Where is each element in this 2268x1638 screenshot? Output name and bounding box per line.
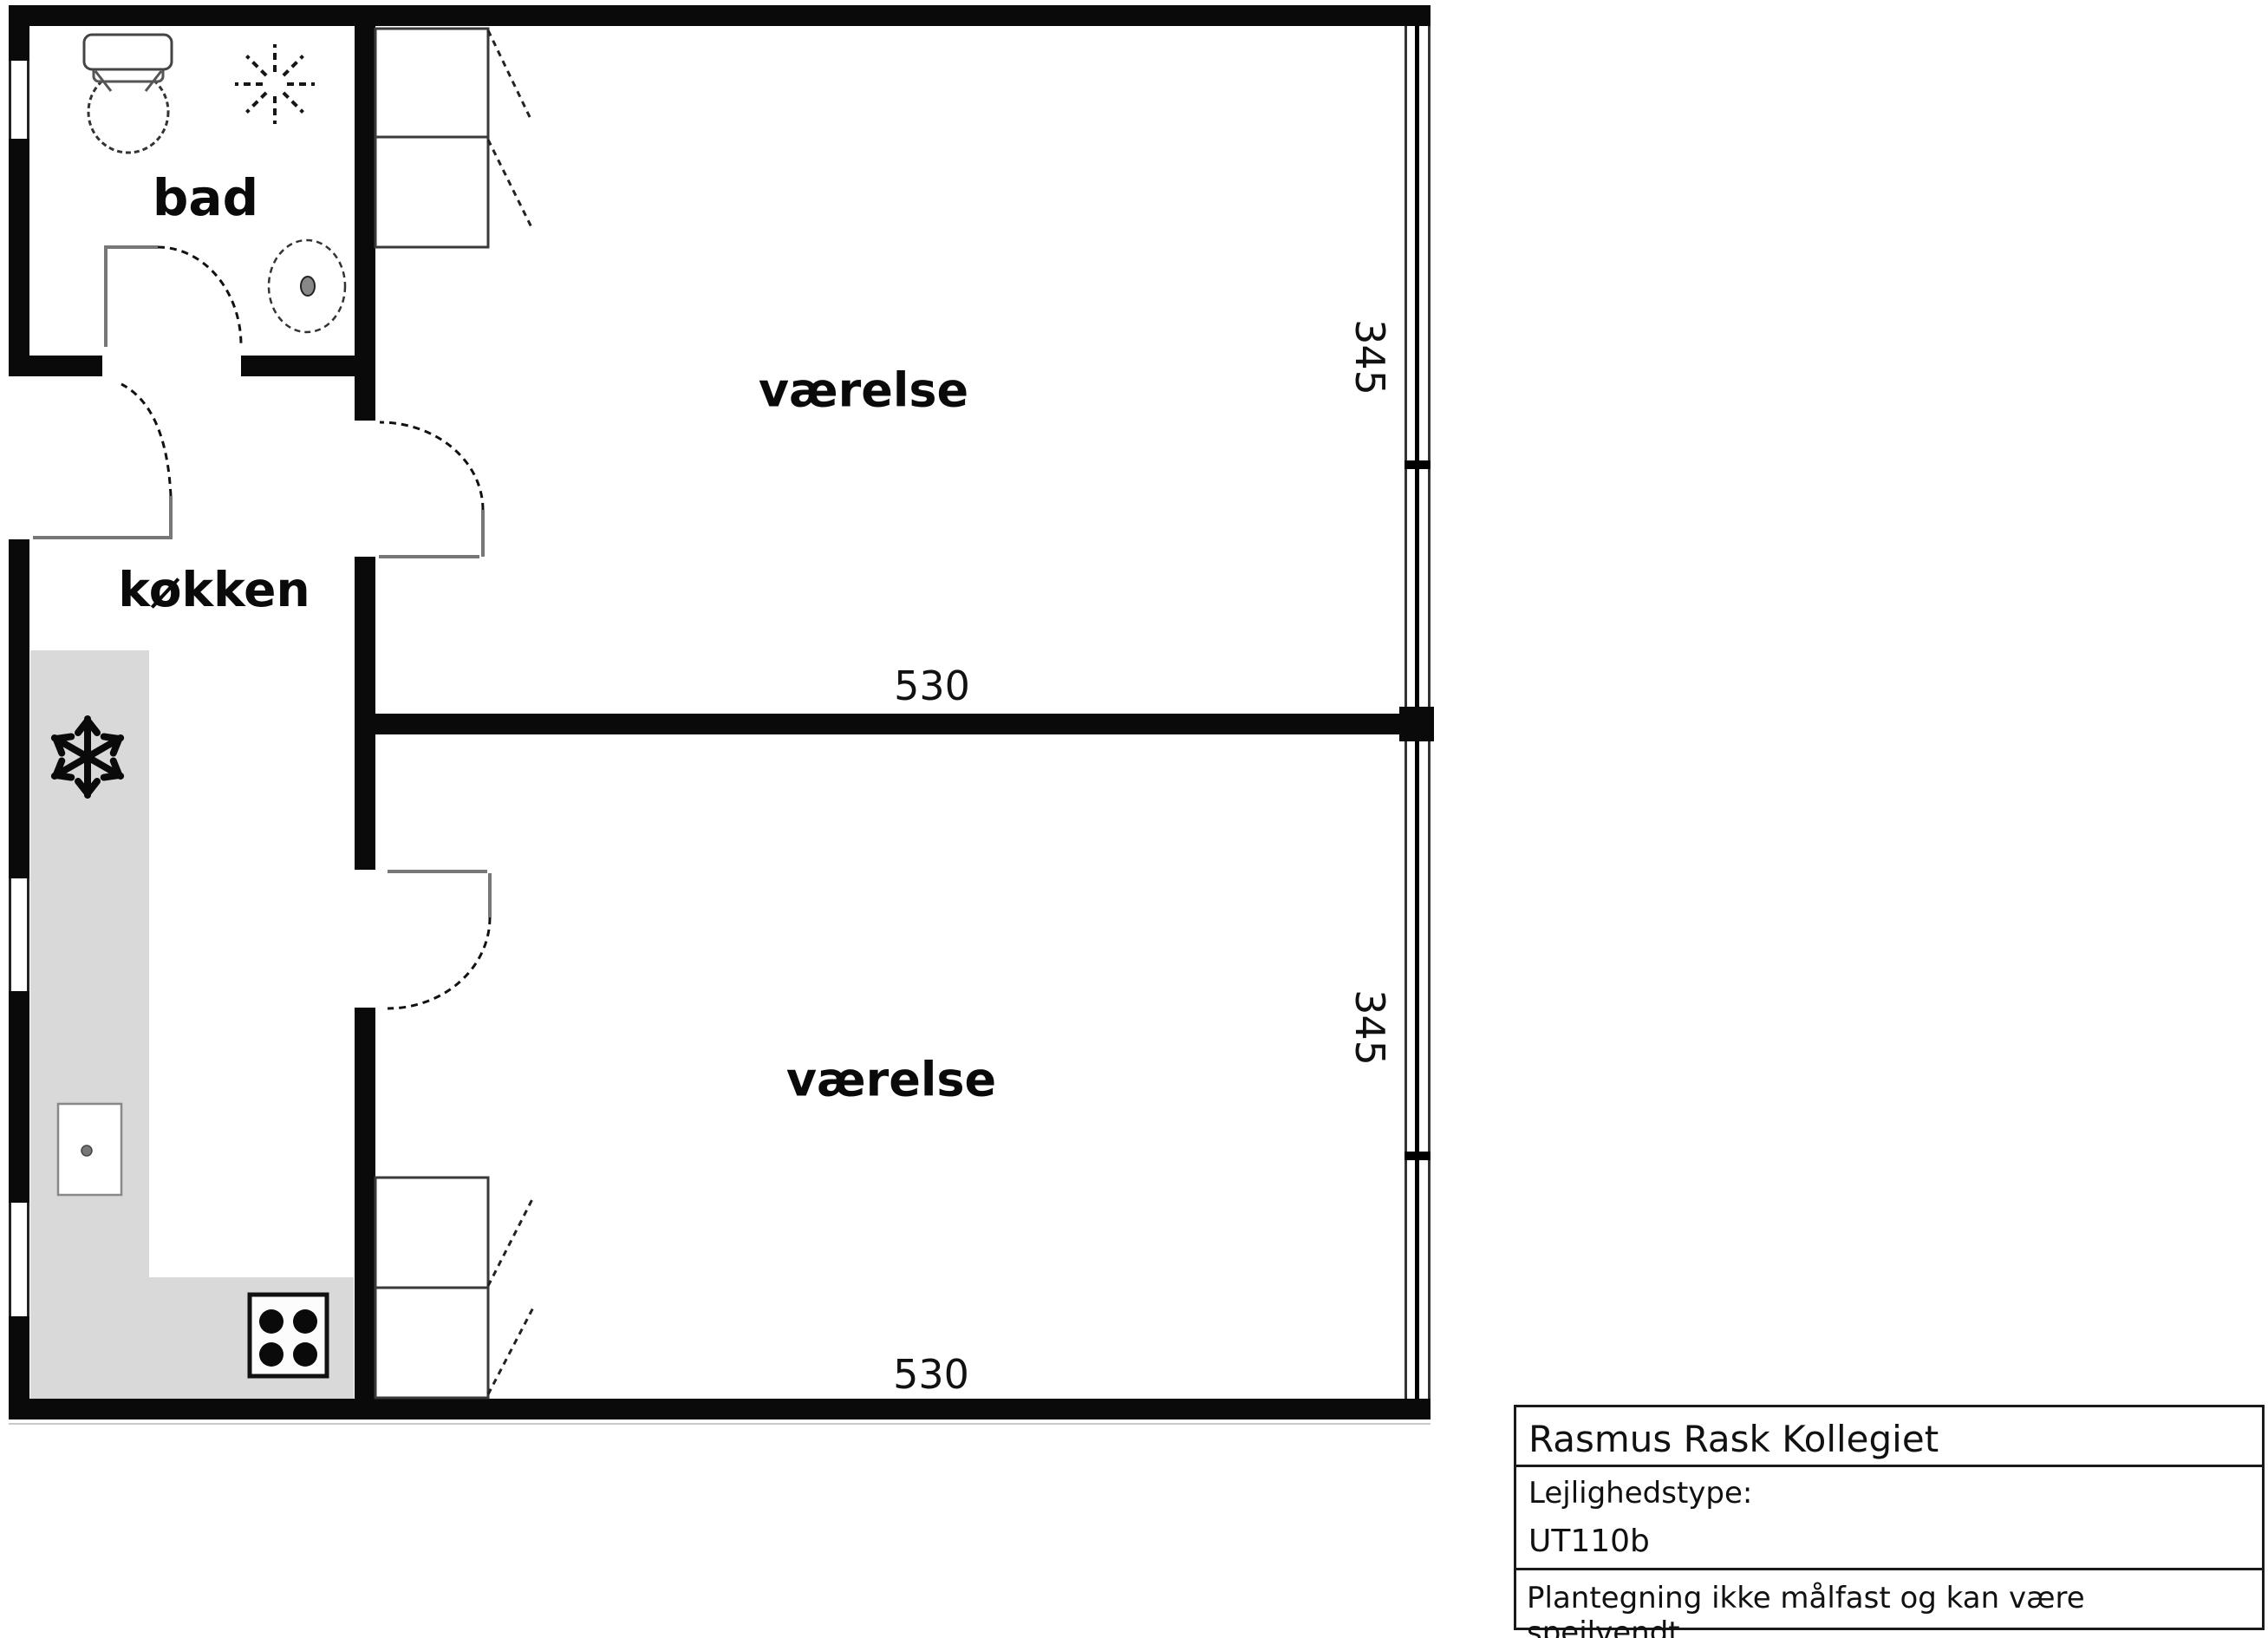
stove-icon: [250, 1295, 327, 1376]
room2-wardrobes: [375, 1178, 533, 1398]
room2-depth-dimension: 345: [1346, 989, 1393, 1066]
apartment-type-label: Lejlighedstype:: [1528, 1476, 2250, 1511]
entry-door-swing: [33, 384, 171, 538]
room2-door-swing: [388, 871, 490, 1008]
kitchen-sink-icon: [58, 1104, 121, 1195]
floor-plan-page: bad køkken værelse værelse 530 345 530 3…: [0, 0, 2268, 1638]
kitchen-label: køkken: [118, 562, 310, 617]
washbasin-icon: [269, 240, 345, 332]
freezer-snowflake-icon: [49, 719, 125, 795]
toilet-icon: [84, 35, 172, 153]
bathroom-label: bad: [153, 168, 258, 227]
title-block-project: Rasmus Rask Kollegiet: [1516, 1407, 2262, 1467]
apartment-type-value: UT110b: [1528, 1524, 2250, 1559]
fixtures-layer: [0, 0, 2268, 1638]
title-block-apartment-type: Lejlighedstype: UT110b: [1516, 1467, 2262, 1570]
ceiling-light-icon: [235, 44, 315, 124]
room1-door-swing: [379, 422, 483, 557]
room2-label: værelse: [786, 1053, 996, 1107]
bathroom-door-swing: [106, 247, 241, 347]
room1-width-dimension: 530: [894, 662, 970, 709]
title-block-disclaimer: Plantegning ikke målfast og kan være spe…: [1516, 1570, 2262, 1628]
room1-label: værelse: [759, 363, 968, 418]
room1-wardrobes: [375, 29, 531, 247]
title-block: Rasmus Rask Kollegiet Lejlighedstype: UT…: [1514, 1405, 2265, 1630]
room1-depth-dimension: 345: [1346, 319, 1393, 395]
room2-width-dimension: 530: [893, 1351, 969, 1398]
